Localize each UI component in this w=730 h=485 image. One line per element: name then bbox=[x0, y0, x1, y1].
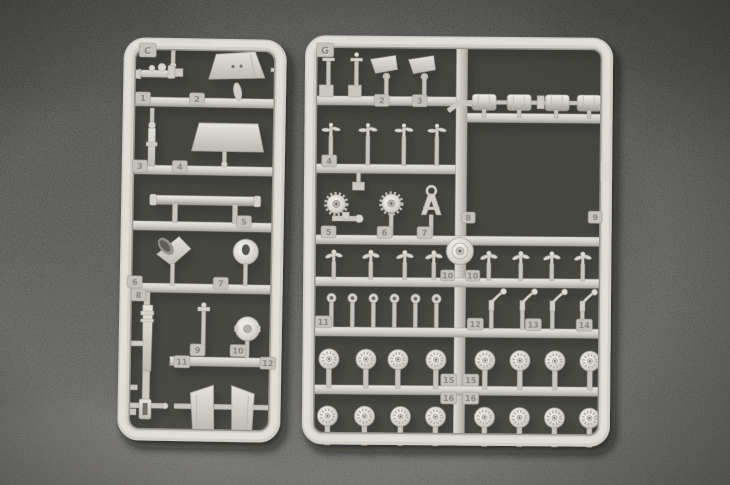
big-disc-part bbox=[446, 237, 473, 264]
part-number-tab: 6 bbox=[132, 278, 138, 287]
part-number-tab: 9 bbox=[195, 346, 201, 355]
sprue-letter: G bbox=[321, 46, 329, 57]
sprue-c: C C 1 2 3 4 5 6 7 8 9 10 11 12 bbox=[122, 39, 284, 441]
part-number-tab: 9 bbox=[592, 213, 598, 222]
part-number-tab: 14 bbox=[579, 321, 591, 330]
part-number-tab: 8 bbox=[136, 291, 142, 300]
part-number-tab: 16 bbox=[465, 394, 477, 403]
part-number-tab: 15 bbox=[443, 376, 455, 385]
part-number-tab: 5 bbox=[241, 218, 247, 227]
part-number-tab: 11 bbox=[318, 318, 330, 327]
part-number-tab: 12 bbox=[262, 359, 273, 368]
wedge-panel-part bbox=[231, 386, 255, 432]
part-number-tab: 15 bbox=[465, 376, 477, 385]
part-number-tab: 10 bbox=[467, 272, 479, 281]
cylinder-part bbox=[468, 94, 501, 110]
part-number-tab: 10 bbox=[442, 271, 454, 280]
part-number-tab: 7 bbox=[422, 229, 428, 238]
part-number-tab: 3 bbox=[137, 162, 143, 171]
sprue-photo: C C 1 2 3 4 5 6 7 8 9 10 11 12 bbox=[0, 0, 730, 485]
part-number-tab: 13 bbox=[528, 321, 539, 330]
part-number-tab: 2 bbox=[379, 96, 385, 105]
part-number-tab: 1 bbox=[140, 94, 146, 103]
part-number-tab: 7 bbox=[218, 279, 224, 288]
part-number-tab: 4 bbox=[177, 163, 183, 172]
part-number-tab: 3 bbox=[417, 97, 423, 106]
cylinder-part bbox=[503, 94, 536, 110]
part-number-tab: 8 bbox=[465, 214, 471, 223]
part-number-tab: 16 bbox=[443, 394, 455, 403]
wedge-panel-part bbox=[190, 385, 215, 431]
part-number-tab: 11 bbox=[176, 358, 188, 367]
part-number-tab: 4 bbox=[326, 157, 332, 166]
part-number-tab: 5 bbox=[326, 228, 332, 237]
runner-embossed-text-ridge bbox=[346, 37, 404, 41]
part-number-tab: 2 bbox=[194, 95, 200, 104]
part-number-tab: 6 bbox=[382, 228, 388, 237]
part-number-tab: 10 bbox=[232, 347, 244, 356]
part-number-tab: 12 bbox=[470, 320, 481, 329]
rail-sleeve bbox=[601, 161, 610, 181]
sprue-letter: C bbox=[144, 46, 152, 57]
sprue-g: G G 2 3 4 5 6 7 8 9 10 10 11 12 13 14 15… bbox=[307, 37, 611, 448]
